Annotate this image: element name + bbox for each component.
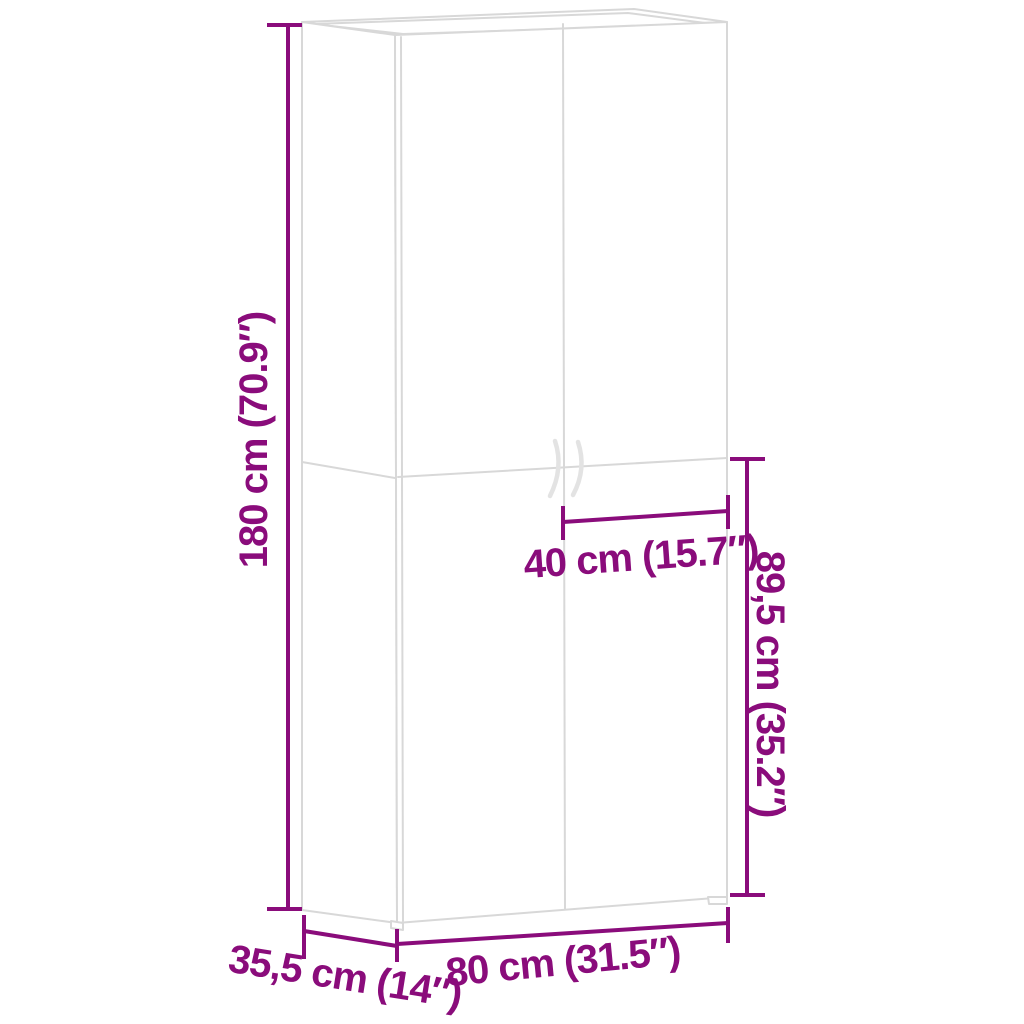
depth-dimension-label: 35,5 cm (14″) xyxy=(225,937,464,1017)
depth-dimension-line xyxy=(304,931,397,946)
cabinet-left-side-panel xyxy=(302,22,397,923)
height-dimension-label: 180 cm (70.9″) xyxy=(232,312,276,568)
product-dimension-diagram: 180 cm (70.9″) 40 cm (15.7″) 89,5 cm (35… xyxy=(0,0,1024,1024)
product-image-canvas: 180 cm (70.9″) 40 cm (15.7″) 89,5 cm (35… xyxy=(0,0,1024,1024)
cabinet-drawing xyxy=(302,9,727,930)
cabinet-right-foot xyxy=(708,897,727,904)
cabinet-front-face xyxy=(395,22,727,923)
depth-dimension: 35,5 cm (14″) xyxy=(225,915,464,1017)
cabinet-left-foot xyxy=(391,921,403,930)
lower-section-height-dimension-label: 89,5 cm (35.2″) xyxy=(748,551,792,818)
height-dimension: 180 cm (70.9″) xyxy=(232,25,302,909)
lower-section-height-dimension: 89,5 cm (35.2″) xyxy=(730,459,792,895)
